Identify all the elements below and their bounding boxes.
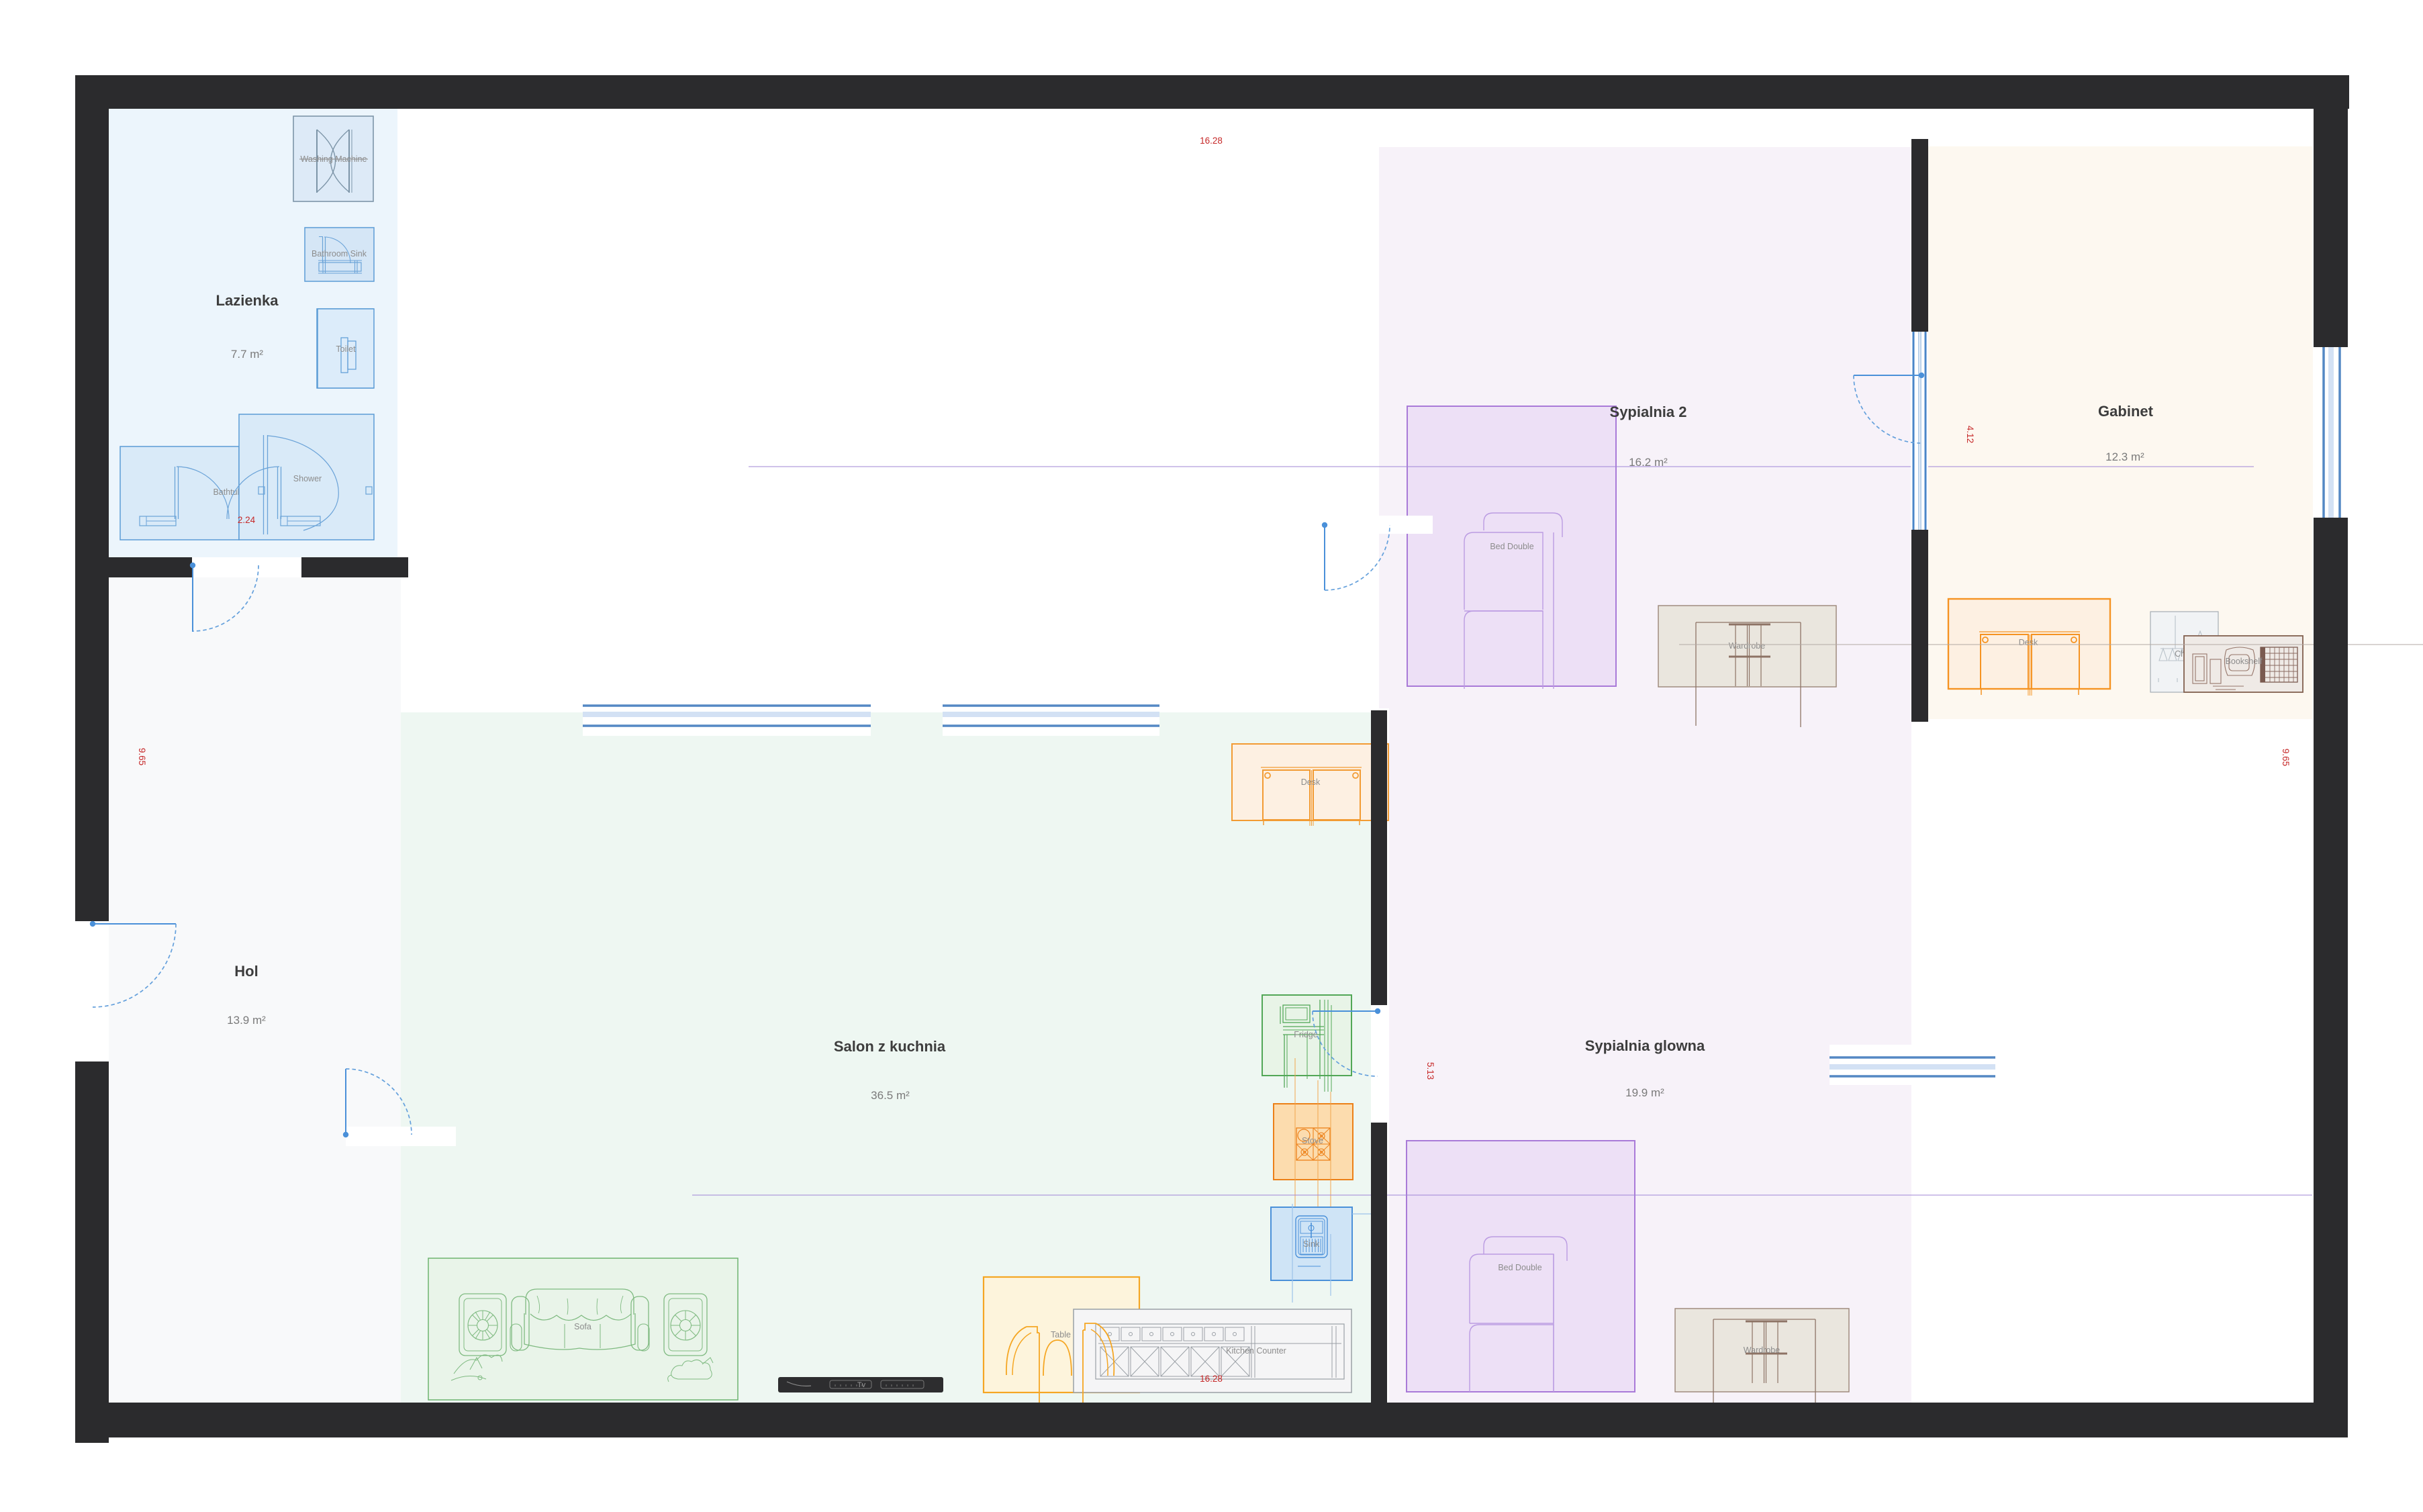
svg-text:Hol: Hol xyxy=(234,963,258,980)
svg-text:Shower: Shower xyxy=(293,474,322,483)
svg-text:4.12: 4.12 xyxy=(1965,426,1975,443)
svg-text:Sypialnia glowna: Sypialnia glowna xyxy=(1585,1037,1705,1054)
svg-text:Desk: Desk xyxy=(2019,638,2038,647)
svg-text:Tv: Tv xyxy=(857,1381,866,1389)
svg-text:Sink: Sink xyxy=(1303,1239,1320,1249)
svg-text:Wardrobe: Wardrobe xyxy=(1729,641,1765,651)
svg-text:Bathtub: Bathtub xyxy=(213,487,242,497)
svg-text:16.2 m²: 16.2 m² xyxy=(1629,456,1668,469)
svg-text:Kitchen Counter: Kitchen Counter xyxy=(1226,1346,1286,1356)
svg-text:Bathroom Sink: Bathroom Sink xyxy=(312,249,367,258)
svg-text:Stove: Stove xyxy=(1302,1136,1323,1145)
svg-text:5.13: 5.13 xyxy=(1425,1062,1435,1080)
svg-text:Sofa: Sofa xyxy=(574,1322,591,1331)
svg-text:7.7 m²: 7.7 m² xyxy=(231,348,264,361)
svg-text:Wardrobe: Wardrobe xyxy=(1744,1345,1780,1355)
svg-text:Table: Table xyxy=(1051,1330,1071,1339)
svg-text:9.65: 9.65 xyxy=(137,748,147,765)
svg-text:2.24: 2.24 xyxy=(238,515,256,525)
svg-text:19.9 m²: 19.9 m² xyxy=(1625,1086,1664,1099)
svg-text:13.9 m²: 13.9 m² xyxy=(227,1014,266,1027)
svg-text:Bed Double: Bed Double xyxy=(1498,1263,1541,1272)
svg-text:16.28: 16.28 xyxy=(1200,1374,1223,1384)
svg-text:12.3 m²: 12.3 m² xyxy=(2105,451,2144,463)
svg-text:Washing Machine: Washing Machine xyxy=(301,154,367,164)
svg-text:36.5 m²: 36.5 m² xyxy=(871,1089,910,1102)
svg-text:Salon z kuchnia: Salon z kuchnia xyxy=(834,1038,946,1055)
svg-text:Gabinet: Gabinet xyxy=(2098,403,2154,420)
svg-text:Bookshelf: Bookshelf xyxy=(2226,657,2263,666)
svg-text:Sypialnia 2: Sypialnia 2 xyxy=(1610,404,1687,420)
svg-text:16.28: 16.28 xyxy=(1200,136,1223,146)
svg-text:Desk: Desk xyxy=(1301,777,1321,787)
svg-text:Toilet: Toilet xyxy=(336,344,356,354)
svg-text:9.65: 9.65 xyxy=(2281,749,2291,766)
svg-text:Bed Double: Bed Double xyxy=(1490,542,1533,551)
svg-text:Fridge: Fridge xyxy=(1294,1030,1317,1039)
svg-text:Lazienka: Lazienka xyxy=(216,292,279,309)
